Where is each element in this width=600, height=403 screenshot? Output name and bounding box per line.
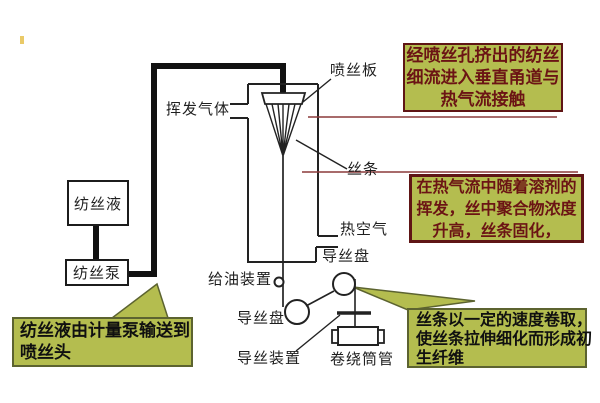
oiling-device-shape	[275, 278, 284, 287]
godet-bottom-shape	[285, 300, 309, 324]
callout-wedge-bottom-left	[112, 284, 168, 318]
callout-bottom-left: 纺丝液由计量泵输送到 喷丝头	[12, 317, 193, 367]
spinning-solution-box: 纺丝液	[67, 180, 129, 226]
callout-line: 挥发，丝中聚合物浓度	[412, 198, 581, 220]
winding-bobbin-flange-left	[332, 330, 338, 343]
callout-line: 细流进入垂直甬道与	[405, 67, 561, 89]
spinneret-plate-shape	[262, 93, 305, 104]
spinning-pump-label: 纺丝泵	[73, 262, 121, 283]
corner-mark	[20, 36, 24, 44]
label-volatile-gas: 挥发气体	[166, 101, 230, 118]
label-godet-bottom: 导丝盘	[237, 310, 285, 327]
winding-bobbin-flange-right	[378, 330, 384, 343]
label-winding-bobbin: 卷绕筒管	[330, 351, 394, 368]
thread-between-godets	[306, 291, 334, 306]
volatile-gas-outlet	[230, 104, 248, 118]
callout-line: 纺丝液由计量泵输送到	[20, 320, 185, 342]
callout-line: 经喷丝孔挤出的纺丝	[405, 45, 561, 67]
dry-spinning-process-diagram: 喷丝板 挥发气体 丝条 热空气 导丝盘 给油装置 导丝盘 导丝装置 卷绕筒管 纺…	[0, 0, 600, 403]
callout-middle-right: 在热气流中随着溶剂的 挥发，丝中聚合物浓度 升高，丝条固化，	[409, 174, 584, 243]
callout-line: 热气流接触	[405, 89, 561, 111]
callout-bottom-right: 丝条以一定的速度卷取， 使丝条拉伸细化而形成初 生纤维	[407, 308, 587, 368]
callout-line: 使丝条拉伸细化而形成初	[416, 329, 578, 348]
callout-line: 在热气流中随着溶剂的	[412, 176, 581, 198]
callout-line: 丝条以一定的速度卷取，	[416, 310, 578, 329]
label-guide-device: 导丝装置	[237, 350, 301, 367]
callout-line: 升高，丝条固化，	[412, 220, 581, 242]
label-spinneret-plate: 喷丝板	[330, 62, 378, 79]
winding-bobbin-body	[338, 327, 378, 345]
spinning-pump-box: 纺丝泵	[65, 259, 129, 286]
duct-right-wall-hot-air-inlet	[316, 84, 338, 262]
label-filament: 丝条	[347, 161, 379, 178]
pipe-pump-to-spinneret	[125, 66, 283, 274]
callout-wedge-bottom-right	[353, 287, 475, 310]
callout-top-right: 经喷丝孔挤出的纺丝 细流进入垂直甬道与 热气流接触	[403, 43, 563, 112]
filament-label-line	[296, 140, 347, 169]
spinning-solution-label: 纺丝液	[74, 193, 122, 214]
callout-line: 生纤维	[416, 348, 578, 367]
callout-line: 喷丝头	[20, 342, 185, 364]
label-oiling-device: 给油装置	[208, 271, 272, 288]
label-hot-air: 热空气	[340, 221, 388, 238]
godet-top-shape	[333, 273, 355, 295]
label-godet-top: 导丝盘	[322, 248, 370, 265]
filament-cone	[266, 104, 301, 156]
